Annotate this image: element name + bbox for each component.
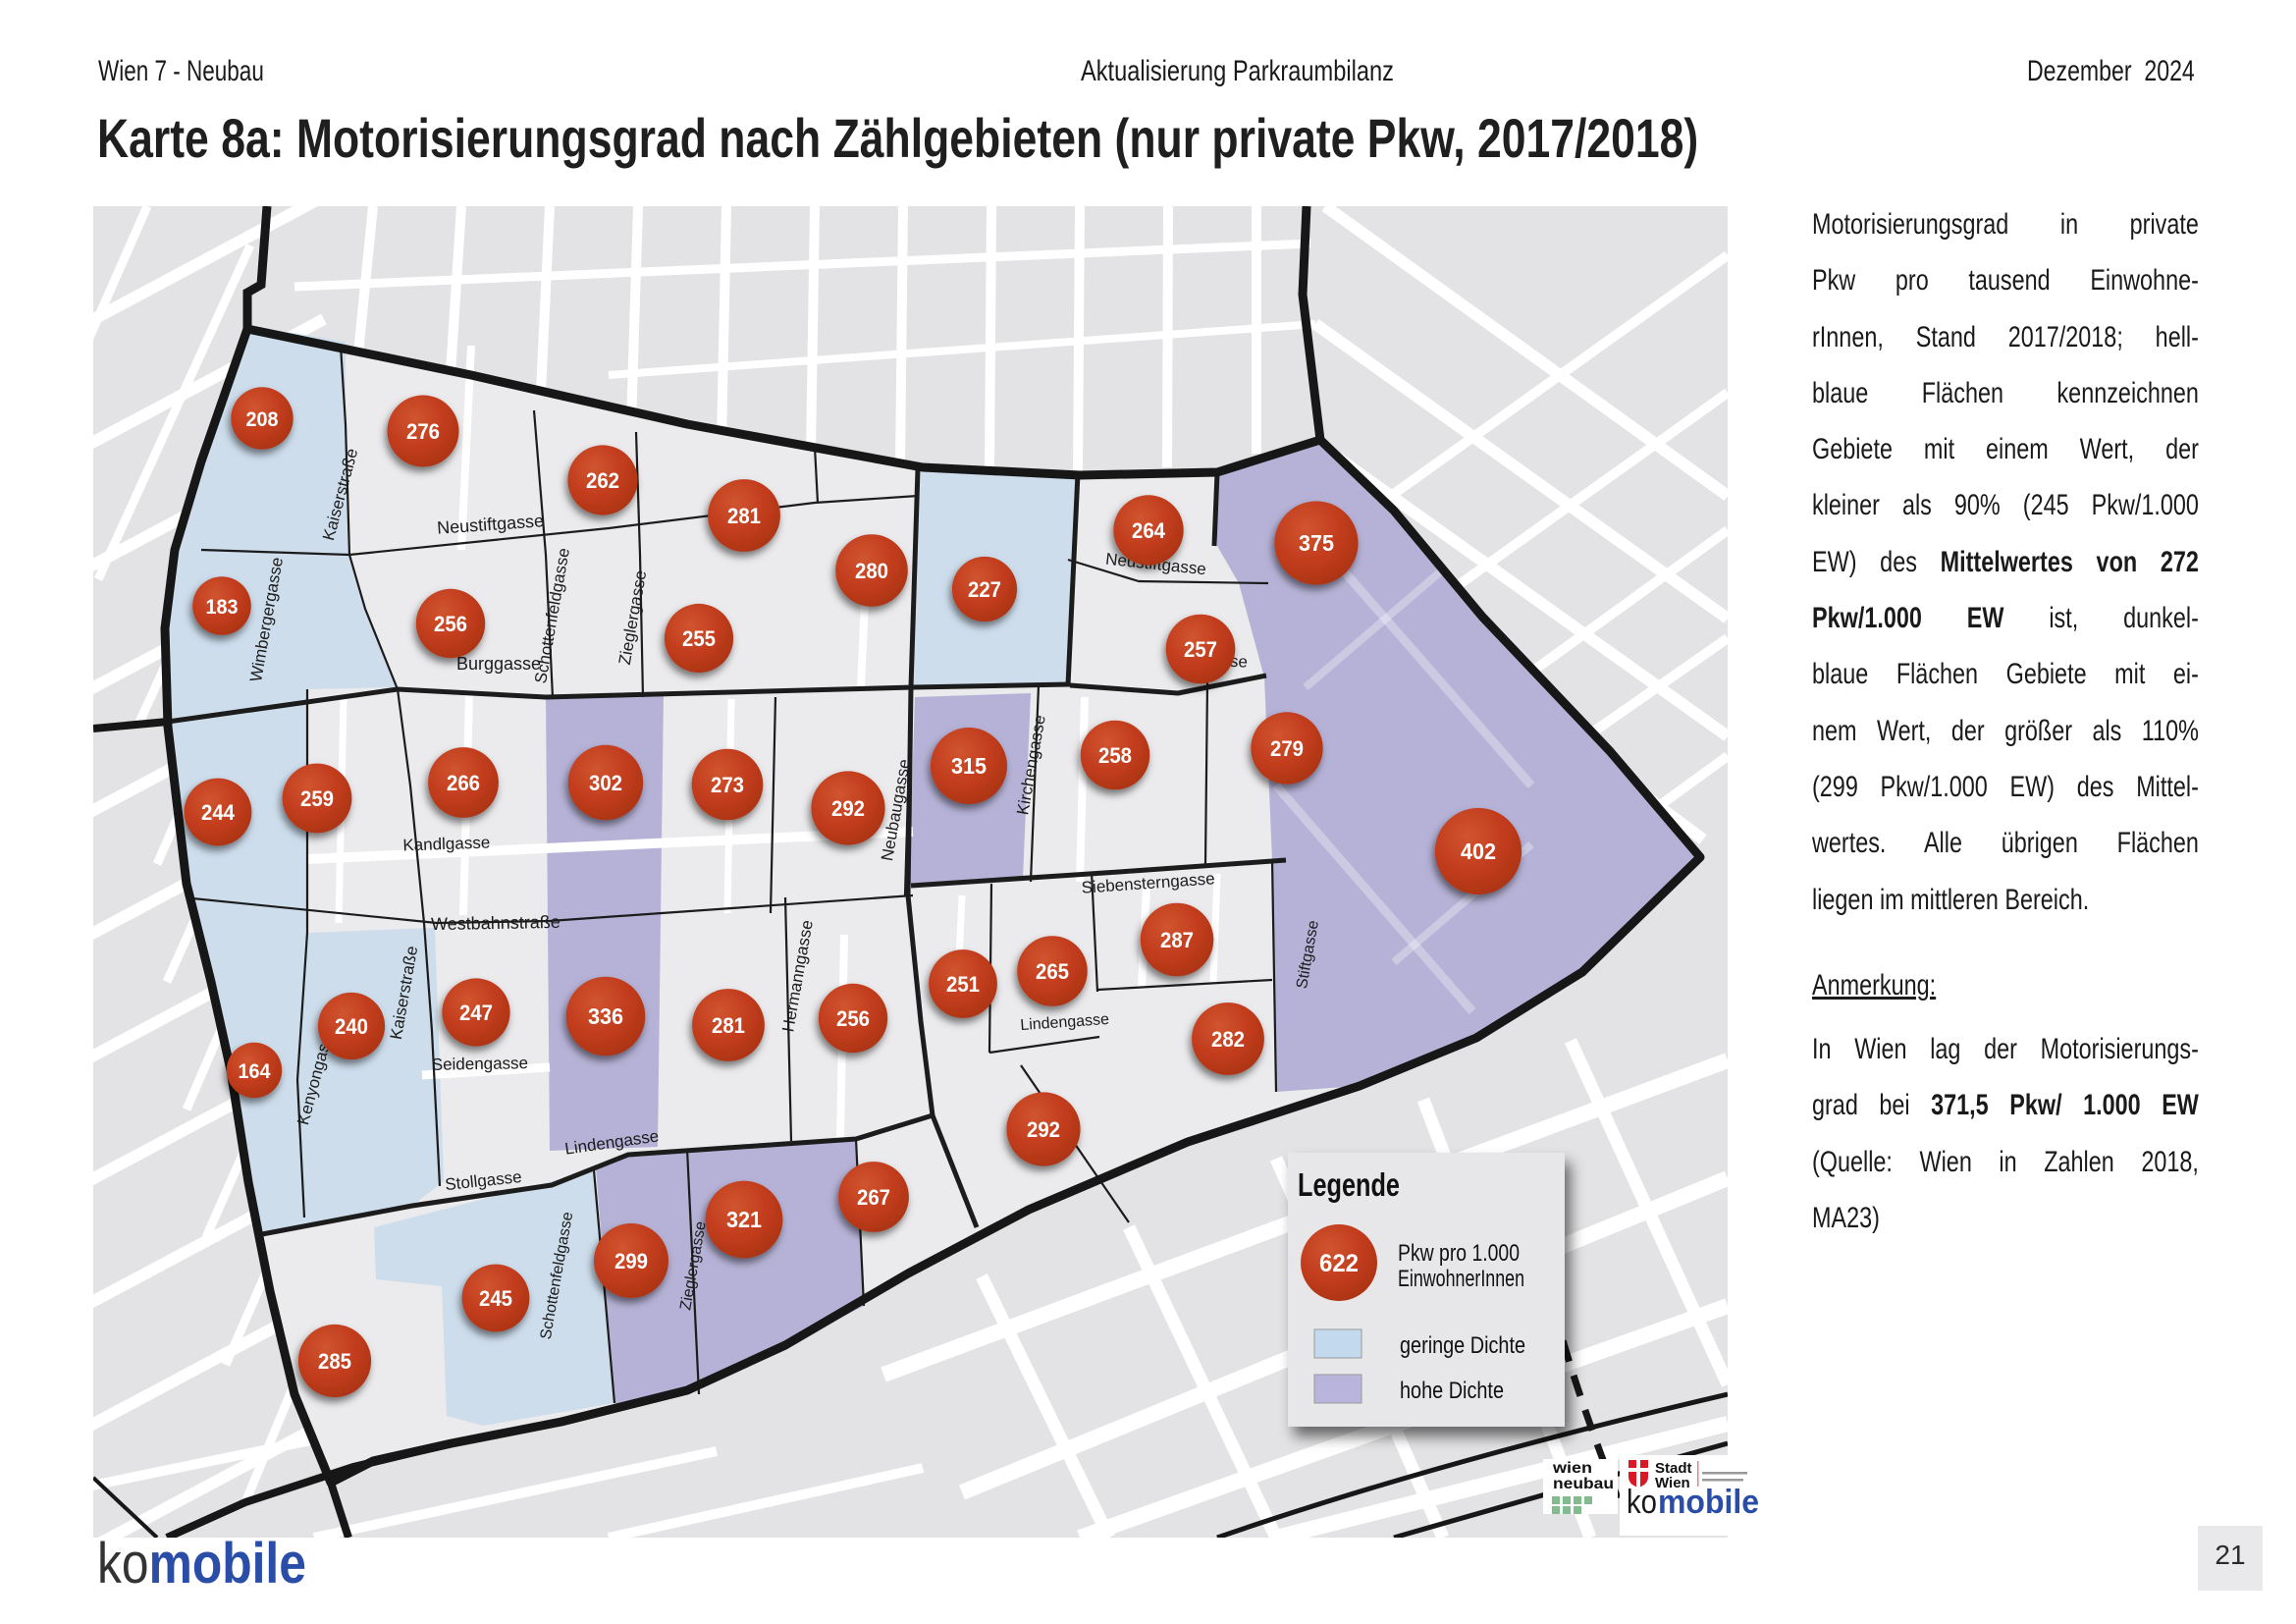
svg-text:262: 262: [586, 468, 619, 493]
svg-text:265: 265: [1036, 959, 1069, 984]
svg-text:255: 255: [682, 626, 716, 651]
svg-text:375: 375: [1299, 530, 1334, 556]
svg-text:267: 267: [857, 1185, 890, 1210]
svg-text:Burggasse: Burggasse: [456, 654, 541, 674]
svg-text:264: 264: [1132, 518, 1166, 543]
svg-text:402: 402: [1461, 839, 1496, 864]
svg-text:mobile: mobile: [1658, 1484, 1759, 1521]
svg-text:wien: wien: [1552, 1460, 1592, 1477]
svg-text:geringe Dichte: geringe Dichte: [1400, 1332, 1525, 1359]
svg-text:273: 273: [711, 773, 744, 797]
svg-text:164: 164: [239, 1060, 271, 1083]
svg-text:245: 245: [479, 1286, 512, 1311]
svg-text:279: 279: [1270, 736, 1304, 761]
svg-text:622: 622: [1319, 1250, 1359, 1277]
svg-text:299: 299: [614, 1249, 648, 1273]
svg-text:256: 256: [434, 612, 467, 636]
svg-text:315: 315: [951, 753, 987, 779]
svg-text:281: 281: [727, 504, 761, 528]
svg-text:276: 276: [406, 419, 440, 444]
svg-text:302: 302: [589, 771, 622, 795]
svg-text:ko: ko: [1627, 1484, 1657, 1521]
svg-text:227: 227: [968, 577, 1001, 602]
svg-text:247: 247: [459, 1001, 493, 1025]
svg-text:292: 292: [831, 796, 865, 821]
svg-text:Seidengasse: Seidengasse: [432, 1054, 529, 1074]
svg-text:EinwohnerInnen: EinwohnerInnen: [1398, 1266, 1524, 1292]
svg-text:hohe Dichte: hohe Dichte: [1400, 1378, 1504, 1404]
svg-text:266: 266: [447, 771, 480, 795]
svg-text:257: 257: [1184, 637, 1217, 662]
svg-text:292: 292: [1027, 1117, 1060, 1142]
svg-text:321: 321: [726, 1207, 762, 1232]
svg-text:Westbahnstraße: Westbahnstraße: [431, 912, 561, 934]
svg-text:258: 258: [1098, 743, 1132, 768]
svg-text:208: 208: [246, 408, 279, 431]
svg-text:Legende: Legende: [1298, 1166, 1400, 1203]
svg-text:259: 259: [300, 786, 334, 811]
svg-text:244: 244: [201, 800, 236, 825]
svg-text:287: 287: [1160, 928, 1194, 952]
svg-text:281: 281: [712, 1013, 745, 1038]
svg-text:285: 285: [318, 1349, 351, 1374]
svg-text:280: 280: [855, 559, 888, 583]
svg-text:256: 256: [836, 1006, 870, 1031]
svg-text:neubau: neubau: [1553, 1476, 1614, 1492]
svg-text:183: 183: [206, 596, 239, 619]
svg-text:240: 240: [335, 1014, 368, 1039]
svg-text:Pkw pro 1.000: Pkw pro 1.000: [1398, 1240, 1520, 1267]
svg-text:282: 282: [1211, 1027, 1245, 1052]
svg-text:336: 336: [588, 1003, 623, 1029]
svg-text:Kandlgasse: Kandlgasse: [402, 833, 490, 854]
svg-text:251: 251: [946, 972, 980, 997]
